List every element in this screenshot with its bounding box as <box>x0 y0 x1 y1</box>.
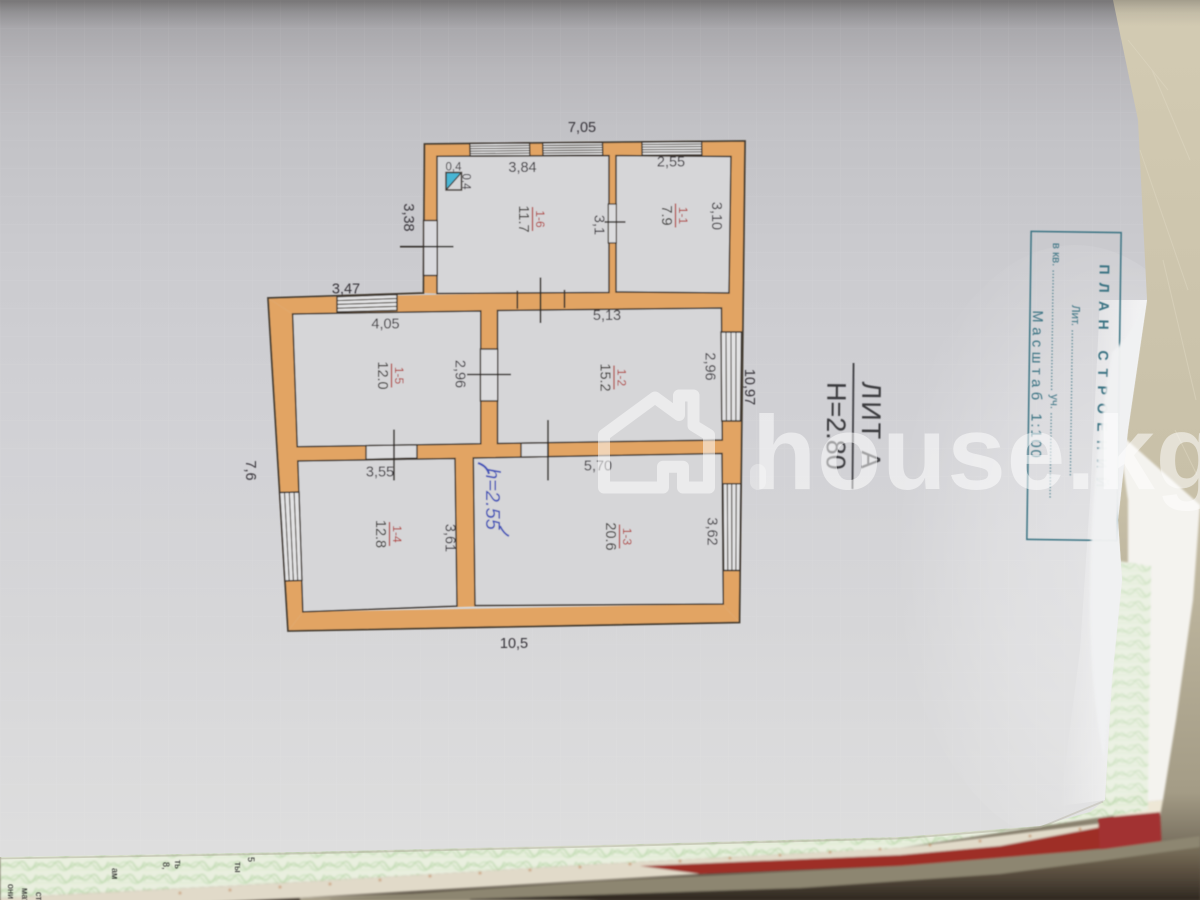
svg-text:3,47: 3,47 <box>332 282 360 298</box>
svg-text:10,5: 10,5 <box>500 636 528 652</box>
svg-text:20.6: 20.6 <box>602 522 618 550</box>
svg-text:1-4: 1-4 <box>390 525 404 543</box>
svg-text:ам: ам <box>110 868 120 879</box>
svg-text:1-6: 1-6 <box>533 210 547 228</box>
svg-text:3,61: 3,61 <box>441 524 457 552</box>
svg-text:8,: 8, <box>161 862 171 870</box>
svg-text:2,96: 2,96 <box>451 360 467 388</box>
svg-text:h=2.55: h=2.55 <box>481 468 503 531</box>
svg-text:1-3: 1-3 <box>620 528 634 546</box>
svg-text:3,55: 3,55 <box>366 465 394 481</box>
svg-text:3,1: 3,1 <box>590 215 606 235</box>
svg-text:2,55: 2,55 <box>657 155 685 171</box>
svg-text:house.kg: house.kg <box>752 395 1200 512</box>
svg-text:7.9: 7.9 <box>658 205 674 225</box>
svg-text:ть: ть <box>173 860 183 869</box>
svg-text:3,38: 3,38 <box>400 203 416 231</box>
svg-text:они: они <box>6 884 16 899</box>
svg-text:1-5: 1-5 <box>392 367 406 385</box>
svg-text:1-1: 1-1 <box>676 207 690 225</box>
svg-text:11.7: 11.7 <box>515 205 531 232</box>
svg-text:3,62: 3,62 <box>703 517 719 545</box>
svg-text:7,05: 7,05 <box>568 120 596 136</box>
svg-text:3,84: 3,84 <box>508 160 536 176</box>
svg-text:7,6: 7,6 <box>242 460 258 480</box>
svg-text:12.0: 12.0 <box>374 361 390 389</box>
svg-text:3,10: 3,10 <box>708 202 724 230</box>
svg-text:1-2: 1-2 <box>615 369 629 387</box>
svg-text:5: 5 <box>246 857 256 862</box>
svg-text:ты: ты <box>233 862 243 873</box>
svg-text:15.2: 15.2 <box>597 363 613 391</box>
svg-text:5,13: 5,13 <box>593 308 621 324</box>
svg-text:4,05: 4,05 <box>371 317 399 333</box>
svg-text:мать: мать <box>20 888 30 900</box>
svg-text:2,96: 2,96 <box>701 352 717 380</box>
svg-text:0,4: 0,4 <box>446 162 463 174</box>
svg-text:ств,: ств, <box>34 892 44 900</box>
svg-text:0,4: 0,4 <box>459 174 471 191</box>
svg-text:12.8: 12.8 <box>372 520 388 548</box>
